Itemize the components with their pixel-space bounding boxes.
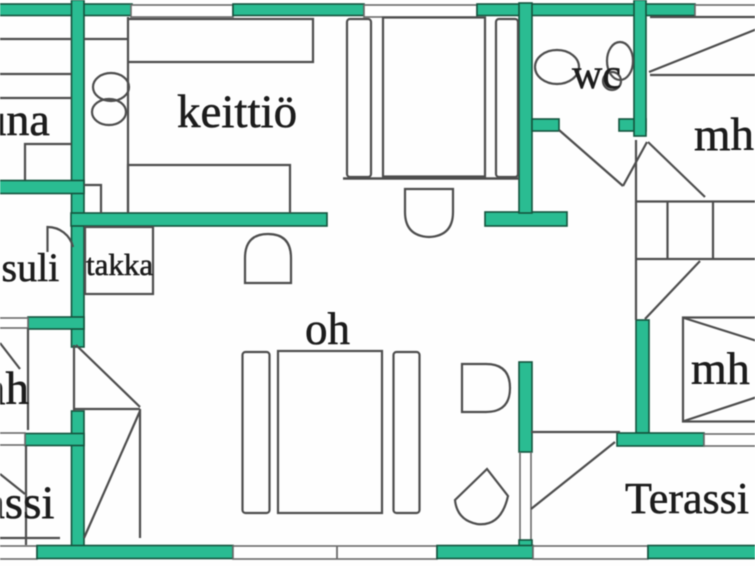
svg-text:wc: wc [572, 52, 621, 98]
svg-text:mh: mh [691, 343, 750, 394]
svg-text:mh: mh [694, 109, 754, 161]
svg-text:suli: suli [2, 245, 60, 290]
svg-text:takka: takka [86, 247, 153, 282]
svg-text:mh: mh [0, 363, 29, 415]
svg-text:Terassi: Terassi [0, 477, 54, 529]
svg-text:Terassi: Terassi [625, 474, 749, 523]
svg-text:keittiö: keittiö [177, 86, 297, 138]
svg-text:sauna: sauna [0, 94, 50, 145]
svg-text:oh: oh [305, 304, 350, 354]
